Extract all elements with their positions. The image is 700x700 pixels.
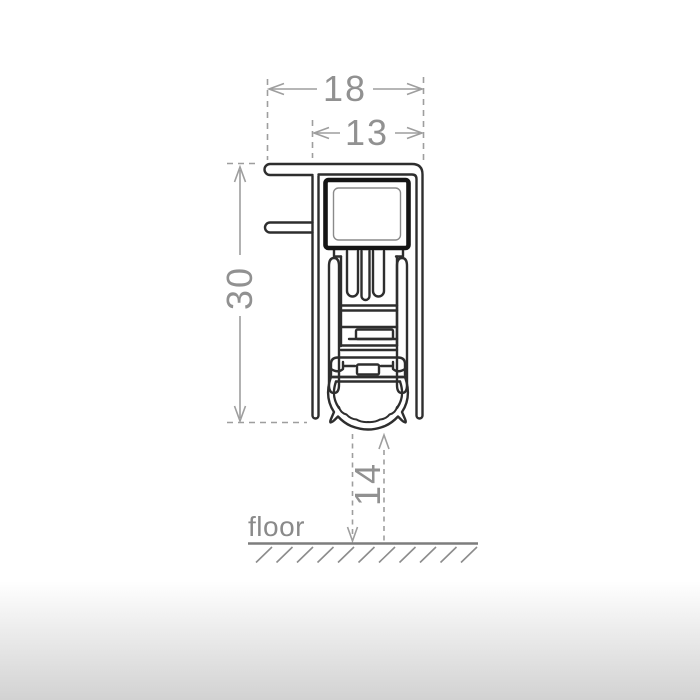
door-seal-profile: [265, 164, 423, 430]
dim-outer-width-label: 18: [323, 68, 367, 109]
left-wall-path: [313, 176, 319, 419]
hatch-mark: [359, 547, 375, 563]
spring-housing-box: [326, 180, 409, 248]
hatch-mark: [420, 547, 436, 563]
door-seal-cross-section-canvas: 18 13 30 14 floor: [0, 0, 700, 700]
hatch-mark: [379, 547, 395, 563]
floor-label: floor: [248, 511, 305, 542]
hatch-mark: [338, 547, 354, 563]
hatch-mark: [256, 547, 272, 563]
hatch-mark: [441, 547, 457, 563]
technical-drawing-page: 18 13 30 14 floor: [0, 0, 700, 700]
dim14-arrow-up: [379, 435, 389, 449]
seal-holder-center-slot: [357, 365, 379, 375]
carrier-rib-slots: [347, 251, 384, 300]
dim-floor-gap-label: 14: [347, 462, 388, 506]
dimension-labels: 18 13 30 14: [219, 68, 389, 506]
hatch-mark: [461, 547, 477, 563]
dim-inner-width-label: 13: [345, 112, 389, 153]
bulb-seal-top-lines: [331, 377, 405, 382]
bulb-seal-inner-walls: [334, 382, 402, 409]
hatch-mark: [400, 547, 416, 563]
floor-group: floor: [248, 511, 478, 563]
carrier-bottom-lines: [341, 339, 397, 350]
bulb-seal-scalloped-edge: [339, 407, 397, 422]
hatch-mark: [318, 547, 334, 563]
floor-hatching: [256, 547, 477, 563]
dim-profile-height-label: 30: [219, 266, 260, 310]
hatch-mark: [297, 547, 313, 563]
spring-housing-inner-liner: [334, 188, 401, 240]
hatch-mark: [277, 547, 293, 563]
carrier-latch-tab: [356, 330, 393, 340]
carrier-divider-lines: [341, 306, 397, 328]
mounting-arm-path: [265, 223, 313, 233]
